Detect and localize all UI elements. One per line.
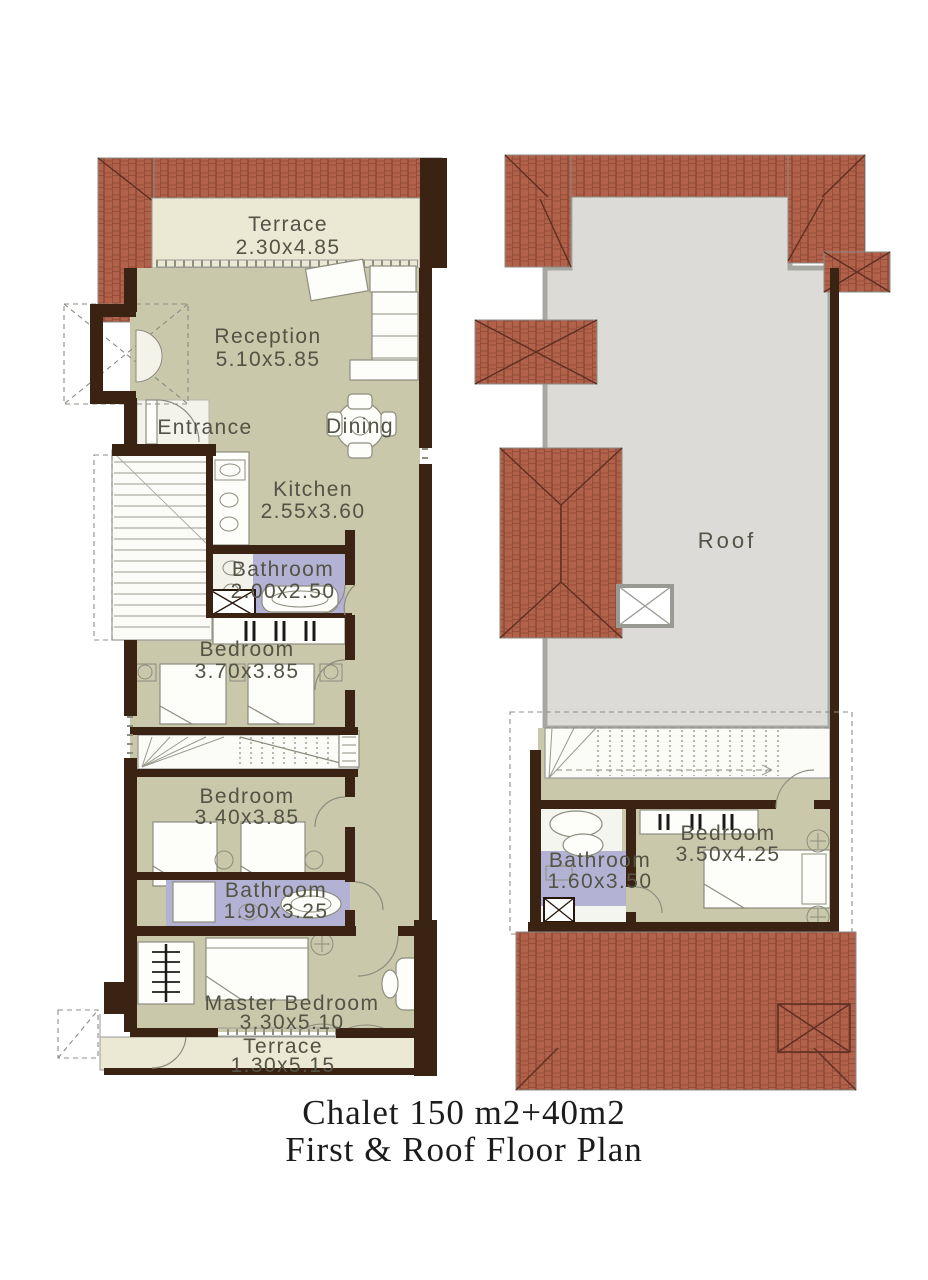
bedroom2-name: Bedroom: [199, 785, 294, 808]
terrace-bottom-dims: 1.30x5.15: [231, 1054, 336, 1077]
skylight-box: [618, 586, 672, 626]
bedroom1-name: Bedroom: [199, 638, 294, 661]
dining-label: Dining: [326, 415, 394, 438]
kitchen-dims: 2.55x3.60: [261, 500, 366, 523]
roof-brick-bottom: [516, 932, 856, 1090]
roof-chimney-box: [475, 320, 597, 384]
kitchen-name: Kitchen: [273, 478, 353, 501]
roof-bedroom-dims: 3.50x4.25: [676, 843, 781, 866]
plan-title-line1: Chalet 150 m2+40m2: [0, 1094, 928, 1131]
vanity-icon: [173, 882, 215, 922]
roof-brick-tall: [500, 448, 622, 638]
terrace-top-name: Terrace: [248, 213, 328, 236]
roof-floor-plan: Roof Bedroom 3.50x4.25 Bathroom 1.60x3.5…: [475, 155, 890, 1090]
stairs-middle: [138, 735, 358, 769]
kitchen-counter: [211, 452, 249, 545]
round-basin-icon: [550, 811, 602, 837]
reception-name: Reception: [214, 325, 321, 348]
roof-bathroom-dims: 1.60x3.50: [548, 870, 653, 893]
bedroom1-dims: 3.70x3.85: [195, 660, 300, 683]
master-bedroom-dims: 3.30x5.10: [240, 1011, 345, 1034]
bathroom2-name: Bathroom: [225, 879, 327, 902]
roof-bedroom-name: Bedroom: [680, 822, 775, 845]
plan-title: Chalet 150 m2+40m2 First & Roof Floor Pl…: [0, 1094, 928, 1168]
armchair-icon: [370, 266, 416, 292]
bedroom2-dims: 3.40x3.85: [195, 806, 300, 829]
bathroom2-dims: 1.90x3.25: [224, 900, 329, 923]
plan-title-line2: First & Roof Floor Plan: [0, 1131, 928, 1168]
bathroom1-name: Bathroom: [232, 558, 334, 581]
stairwell-upper: [94, 450, 212, 640]
roof-label: Roof: [698, 528, 756, 553]
bathroom1-dims: 2.00x2.50: [231, 580, 336, 603]
roof-stairs: [545, 728, 830, 778]
duct-box: [339, 731, 359, 767]
first-floor-plan: Terrace 2.30x4.85 Reception 5.10x5.85 En…: [58, 158, 447, 1077]
roof-bathroom-name: Bathroom: [549, 849, 651, 872]
terrace-top-dims: 2.30x4.85: [236, 236, 341, 259]
reception-dims: 5.10x5.85: [216, 348, 321, 371]
entrance-label: Entrance: [157, 416, 252, 439]
dashed-corner-box: [58, 1010, 98, 1058]
floor-plans-canvas: Terrace 2.30x4.85 Reception 5.10x5.85 En…: [0, 0, 928, 1280]
floor-plan-page: { "title": { "line1": "Chalet 150 m2+40m…: [0, 0, 928, 1280]
